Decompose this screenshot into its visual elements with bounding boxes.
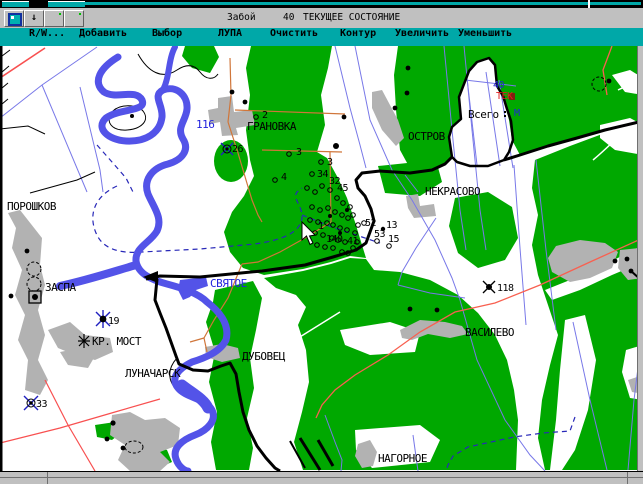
arrow-down-icon: ↓ bbox=[31, 12, 37, 23]
well-3b: 3 bbox=[327, 157, 333, 168]
well-33: 33 bbox=[36, 399, 48, 410]
indicator-dot bbox=[59, 13, 61, 15]
background-tab bbox=[48, 1, 85, 7]
well-34: 34 bbox=[317, 169, 329, 180]
label-granovka: ГРАНОВКА bbox=[247, 120, 297, 133]
label-116: 116 bbox=[196, 118, 214, 131]
menu-item-zoom-out[interactable]: Уменьшить bbox=[458, 28, 512, 46]
well-13: 13 bbox=[386, 220, 398, 231]
well-19: 19 bbox=[108, 316, 120, 327]
label-ostrov: ОСТРОВ bbox=[408, 130, 446, 143]
label-40: 40 bbox=[493, 80, 505, 91]
well-1: 1 bbox=[318, 221, 324, 232]
label-poroshkov: ПОРОШКОВ bbox=[7, 200, 57, 213]
menu-item-zoom-in[interactable]: Увеличить bbox=[395, 28, 449, 46]
toolbar-button[interactable] bbox=[44, 10, 64, 27]
app-window: ↓ Забой 40 ТЕКУЩЕЕ СОСТОЯНИЕ R/W... Доба… bbox=[0, 0, 643, 484]
map-left-border bbox=[0, 46, 3, 471]
menu-item-rw[interactable]: R/W... bbox=[29, 28, 65, 46]
window-icon bbox=[8, 13, 22, 26]
label-vsego: Всего bbox=[468, 108, 499, 121]
divider bbox=[588, 0, 590, 8]
well-41: 41 bbox=[347, 236, 359, 247]
label-tek: ТЕК bbox=[496, 91, 513, 102]
well-2: 2 bbox=[262, 110, 268, 121]
window-right-frame bbox=[637, 46, 643, 471]
background-titlebar-edge bbox=[85, 2, 641, 5]
background-tab bbox=[2, 1, 29, 7]
well-26: 26 bbox=[232, 144, 244, 155]
menu-item-contour[interactable]: Контур bbox=[340, 28, 376, 46]
label-dubovets: ДУБОВЕЦ bbox=[242, 350, 286, 363]
window-title-status: ТЕКУЩЕЕ СОСТОЯНИЕ bbox=[303, 8, 400, 28]
well-15: 15 bbox=[388, 234, 400, 245]
label-svyatoe: СВЯТОЕ bbox=[210, 277, 247, 290]
label-lunacharsk: ЛУНАЧАРСК bbox=[125, 367, 181, 380]
well-53: 53 bbox=[374, 229, 386, 240]
label-kr-most: КР. МОСТ bbox=[92, 335, 142, 348]
window-title: Забой bbox=[227, 8, 256, 28]
well-45: 45 bbox=[337, 183, 349, 194]
divider bbox=[47, 472, 48, 484]
label-zaspa: ЗАСПА bbox=[45, 281, 76, 294]
menu-item-select[interactable]: Выбор bbox=[152, 28, 182, 46]
indicator-dot bbox=[79, 13, 81, 15]
menu-item-clear[interactable]: Очистить bbox=[270, 28, 318, 46]
label-nekrasovo: НЕКРАСОВО bbox=[425, 185, 480, 198]
minimize-button[interactable]: ↓ bbox=[24, 10, 44, 27]
well-140: 140 bbox=[326, 234, 343, 245]
label-vasilevo: ВАСИЛЕВО bbox=[465, 326, 514, 339]
divider bbox=[627, 472, 628, 484]
system-menu-button[interactable] bbox=[4, 10, 24, 27]
menu-item-add[interactable]: Добавить bbox=[79, 28, 127, 46]
window-bottom-frame[interactable] bbox=[0, 471, 643, 484]
bridge-asterisk bbox=[78, 334, 90, 348]
well-4: 4 bbox=[281, 172, 287, 183]
label-nagornoe: НАГОРНОЕ bbox=[378, 452, 427, 465]
menu-item-loupe[interactable]: ЛУПА bbox=[218, 28, 242, 46]
frame-ridge bbox=[0, 478, 643, 484]
window-titlebar: ↓ Забой 40 ТЕКУЩЕЕ СОСТОЯНИЕ bbox=[0, 8, 643, 29]
well-3: 3 bbox=[296, 147, 302, 158]
map-svg: ПОРОШКОВ ЗАСПА КР. МОСТ ЛУНАЧАРСК СВЯТОЕ… bbox=[0, 46, 637, 471]
toolbar-button[interactable] bbox=[64, 10, 84, 27]
background-window-strip bbox=[0, 0, 643, 8]
map-canvas[interactable]: ПОРОШКОВ ЗАСПА КР. МОСТ ЛУНАЧАРСК СВЯТОЕ… bbox=[0, 46, 637, 471]
well-118: 118 bbox=[497, 283, 514, 294]
menu-bar: R/W... Добавить Выбор ЛУПА Очистить Конт… bbox=[0, 28, 643, 47]
label-m: М bbox=[514, 108, 520, 119]
window-title-number: 40 bbox=[283, 8, 294, 28]
well-52: 52 bbox=[365, 218, 377, 229]
